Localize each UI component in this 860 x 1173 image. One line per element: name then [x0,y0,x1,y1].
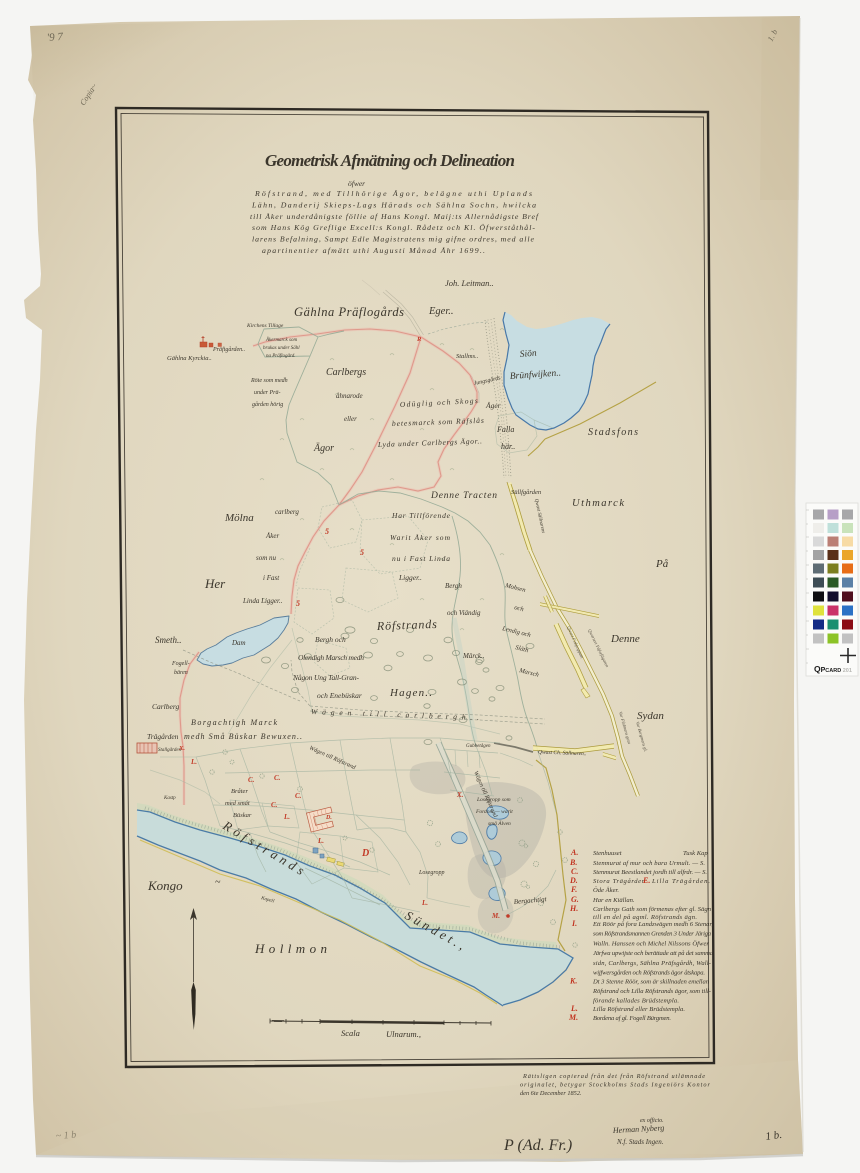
svg-text:D.: D. [325,815,332,821]
svg-text:Joh. Leitman..: Joh. Leitman.. [445,278,494,288]
svg-text:Bergh: Bergh [445,582,462,590]
svg-text:Röfstrand och Lilla Röfstrands: Röfstrand och Lilla Röfstrands ägor, som… [592,988,711,995]
svg-text:P (Ad. Fr.): P (Ad. Fr.) [503,1137,572,1154]
svg-text:Röfstrand, med Tillhörige Ägor: Röfstrand, med Tillhörige Ägor, belägne … [254,189,532,198]
svg-text:1 b.: 1 b. [765,1129,783,1143]
svg-text:F.: F. [570,885,577,894]
svg-text:Geometrisk Afmätning och Delin: Geometrisk Afmätning och Delineation [265,151,515,170]
svg-text:till en del på agml. Röfstrand: till en del på agml. Röfstrands ägn. [593,914,697,921]
svg-text:Präftgården..: Präftgården.. [212,346,245,353]
svg-text:Har Tillförende: Har Tillförende [391,511,451,520]
svg-text:och Enebüskar: och Enebüskar [317,691,362,700]
svg-text:Kongo: Kongo [147,878,183,893]
svg-text:Eger..: Eger.. [428,306,454,317]
svg-text:L.: L. [421,899,428,907]
svg-text:Har en Kiällan.: Har en Kiällan. [592,897,635,904]
svg-text:bären: bären [174,670,188,676]
svg-text:med smát: med smát [225,800,250,807]
svg-text:'9 7: '9 7 [46,31,63,44]
svg-text:Ett Röör på fora Landzwägen me: Ett Röör på fora Landzwägen medh 6 Stena… [592,921,713,928]
svg-text:som nu: som nu [256,554,277,562]
svg-text:Walln. Hanssen och Michel Nils: Walln. Hanssen och Michel Nilssons Öfwer [593,939,709,947]
svg-text:medh Små Büskar Bewuxen..: medh Små Büskar Bewuxen.. [184,732,302,741]
svg-text:Denne: Denne [610,633,640,645]
svg-text:Carlbergs: Carlbergs [326,367,366,378]
svg-text:5: 5 [296,599,300,608]
svg-text:Stenmurat af mur och bara Urmu: Stenmurat af mur och bara Urmult. — S. [593,860,705,867]
svg-text:eller: eller [344,415,357,423]
svg-text:Stallms..: Stallms.. [456,353,479,360]
svg-text:E.: E. [642,876,650,885]
svg-text:Trägården: Trägården [147,732,179,741]
svg-text:under Prä-: under Prä- [254,390,281,396]
svg-text:som Röfstrandsmannen Grenden 3: som Röfstrandsmannen Grenden 3 Under Jär… [593,931,712,938]
svg-text:Öde Åker.: Öde Åker. [593,886,619,894]
svg-text:Scala: Scala [341,1028,360,1038]
svg-text:X.: X. [456,791,464,799]
svg-text:na Präflogård.: na Präflogård. [266,353,296,359]
svg-text:Äger: Äger [485,401,501,410]
svg-text:C.: C. [274,774,281,782]
svg-text:L.: L. [570,1004,578,1013]
svg-text:gården hörig: gården hörig [252,401,283,408]
svg-text:Röfstrands: Röfstrands [376,617,438,633]
svg-text:Tusk Kap: Tusk Kap [683,850,708,857]
svg-text:Sydan: Sydan [637,710,664,722]
svg-text:C.: C. [571,867,578,876]
svg-text:Röte som medh: Röte som medh [250,378,288,384]
svg-text:små Älven: små Älven [488,820,511,827]
svg-text:Losegropp som: Losegropp som [476,797,511,803]
svg-text:Gählna Kyrckia..: Gählna Kyrckia.. [167,355,212,362]
svg-text:M.: M. [491,912,500,920]
svg-text:C.: C. [271,801,278,809]
svg-text:På: På [655,558,669,570]
svg-text:Stenmurat Beestlandet jordh ti: Stenmurat Beestlandet jordh till alfrdr.… [593,869,707,876]
svg-text:sidn, Carlbergs, Sählna Präfsg: sidn, Carlbergs, Sählna Präfsgårdh, Wall… [593,960,711,967]
svg-text:Dt 3 Stenne Röör, som är skill: Dt 3 Stenne Röör, som är skillnaden emel… [592,979,710,986]
svg-text:G.: G. [571,895,579,904]
svg-text:Ulnarum.,: Ulnarum., [386,1029,421,1039]
svg-text:Süllfgården: Süllfgården [511,489,541,496]
svg-text:Warit Åker som: Warit Åker som [390,533,451,542]
svg-text:till Åker underdånigste föllie: till Åker underdånigste föllie af Hans K… [250,212,540,221]
svg-text:Kastp: Kastp [163,796,176,801]
svg-text:Bergh och: Bergh och [315,635,346,644]
svg-text:carlberg: carlberg [275,508,299,516]
svg-text:Åker: Åker [265,532,279,540]
svg-text:nu i Fast Linda: nu i Fast Linda [392,554,450,563]
svg-text:Rättsligen copierad från det f: Rättsligen copierad från det från Röfstr… [522,1073,705,1080]
svg-text:originalet, betygar Stockholms: originalet, betygar Stockholms Stads Ing… [520,1082,711,1089]
svg-text:Stadsfons: Stadsfons [588,427,638,438]
svg-text:Gubbetågen: Gubbetågen [466,743,491,749]
svg-text:åhnarode: åhnarode [336,392,363,400]
svg-text:Olendigh Marsch medh: Olendigh Marsch medh [298,653,364,662]
svg-text:N.f. Stads Ingen.: N.f. Stads Ingen. [616,1138,664,1146]
svg-text:Bordena af gl. Fogell Bürgmen.: Bordena af gl. Fogell Bürgmen. [593,1015,671,1022]
svg-text:Siön: Siön [519,349,537,360]
svg-text:i Fast: i Fast [263,574,280,582]
svg-text:I.: I. [571,919,577,928]
svg-text:apartinentier afmätt uthi Augu: apartinentier afmätt uthi Augusti Månad … [262,246,485,255]
svg-text:D: D [361,848,369,859]
svg-text:Gählna Präflogårds: Gählna Präflogårds [294,305,404,319]
svg-text:B.: B. [569,858,577,867]
svg-text:~ 1 b: ~ 1 b [55,1130,76,1142]
svg-text:Lähn, Danderij Skieps-Lags Här: Lähn, Danderij Skieps-Lags Härads och Sä… [251,200,536,209]
svg-text:öfwer: öfwer [348,179,365,188]
svg-text:L.: L. [190,758,197,766]
svg-text:A.: A. [570,848,578,857]
svg-text:förande kallades Brüdstempla.: förande kallades Brüdstempla. [593,998,679,1005]
svg-text:Någon Ung Tall-Gran-: Någon Ung Tall-Gran- [292,673,360,682]
svg-text:Her: Her [204,576,226,591]
svg-text:Lilla Trägården.: Lilla Trägården. [651,878,710,885]
svg-text:Stenhuuset: Stenhuuset [593,850,622,857]
svg-text:5: 5 [360,548,364,557]
svg-text:Lilla Röfstrand eller Brüdstem: Lilla Röfstrand eller Brüdstempla. [592,1006,685,1013]
svg-text:5: 5 [325,527,329,536]
svg-text:C.: C. [295,792,302,800]
svg-text:Ägor: Ägor [313,442,334,454]
svg-text:Carlberg: Carlberg [152,702,179,711]
svg-text:Fogell-: Fogell- [171,661,190,667]
svg-text:Kirchens Tillage: Kirchens Tillage [246,323,284,329]
svg-text:K.: K. [569,977,577,986]
svg-text:och Viändig: och Viändig [447,609,481,617]
svg-text:Hagen..: Hagen.. [389,687,432,699]
svg-text:R: R [416,336,422,343]
svg-text:Fordom — warit: Fordom — warit [475,809,513,815]
svg-text:den 6te December 1852.: den 6te December 1852. [520,1090,582,1097]
svg-text:~: ~ [215,877,221,888]
svg-text:Märck..: Märck.. [462,652,485,660]
svg-text:Smeth..: Smeth.. [155,635,182,645]
svg-text:X.: X. [178,745,185,752]
svg-text:L.: L. [283,813,290,821]
svg-text:Büskar: Büskar [233,812,252,819]
svg-text:som Hans Kög Greflige Excell:s: som Hans Kög Greflige Excell:s Kongl. Rå… [252,223,535,232]
svg-text:här..: här.. [501,442,515,451]
svg-text:Denne Tracten: Denne Tracten [430,491,497,501]
svg-text:Stora Trägården: Stora Trägården [593,878,646,885]
svg-text:Dam: Dam [231,639,246,647]
svg-text:brukas under Sähl: brukas under Sähl [263,346,300,351]
svg-text:Linda Ligger..: Linda Ligger.. [242,597,283,605]
svg-text:Järfwa upwijste och berättade: Järfwa upwijste och berättade att på det… [593,950,714,957]
svg-text:Åkermarck som: Åkermarck som [265,337,297,343]
svg-text:L.: L. [317,837,324,845]
svg-text:Mölna: Mölna [224,512,254,524]
svg-text:Borgachtigh Marck: Borgachtigh Marck [191,718,277,727]
svg-text:D.: D. [569,876,578,885]
svg-text:Falla: Falla [496,425,514,434]
svg-text:Losegropp: Losegropp [418,870,444,876]
svg-text:M.: M. [568,1013,578,1022]
svg-text:C.: C. [248,776,255,784]
svg-text:Carlbergs Gath som förmenas ef: Carlbergs Gath som förmenas efter gl. Sä… [593,906,712,913]
svg-text:larens Befalning, Sampt Edle M: larens Befalning, Sampt Edle Magistraten… [252,235,535,244]
svg-text:Bråter: Bråter [231,788,248,795]
svg-text:Ligger..: Ligger.. [398,573,422,582]
svg-text:wijfwersgården och Röfstrands: wijfwersgården och Röfstrands ägor åtska… [593,970,705,977]
svg-text:H.: H. [569,904,578,913]
